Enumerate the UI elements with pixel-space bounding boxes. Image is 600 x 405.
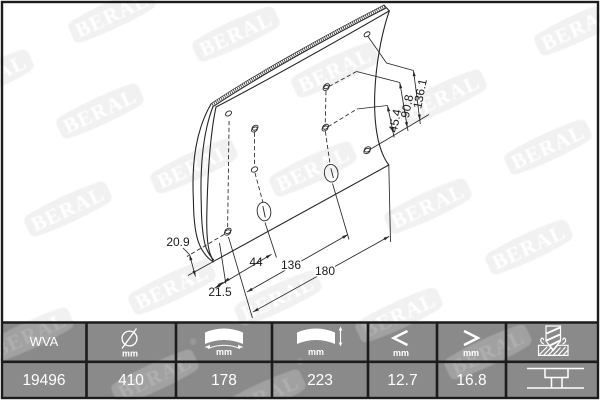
svg-text:20.9: 20.9 — [166, 235, 190, 249]
svg-text:16.8: 16.8 — [456, 372, 486, 389]
svg-text:136: 136 — [281, 258, 301, 272]
svg-text:12.7: 12.7 — [387, 372, 417, 389]
svg-text:mm: mm — [463, 348, 479, 358]
svg-text:180: 180 — [315, 264, 335, 278]
svg-text:223: 223 — [307, 372, 333, 389]
svg-text:19496: 19496 — [22, 372, 65, 389]
svg-text:mm: mm — [122, 349, 138, 359]
svg-text:mm: mm — [216, 347, 232, 357]
svg-text:WVA: WVA — [30, 334, 59, 349]
svg-text:21.5: 21.5 — [208, 285, 232, 299]
svg-text:mm: mm — [393, 348, 409, 358]
svg-text:mm: mm — [308, 347, 324, 357]
svg-text:410: 410 — [118, 372, 144, 389]
svg-text:178: 178 — [211, 372, 237, 389]
svg-text:44: 44 — [249, 255, 263, 269]
